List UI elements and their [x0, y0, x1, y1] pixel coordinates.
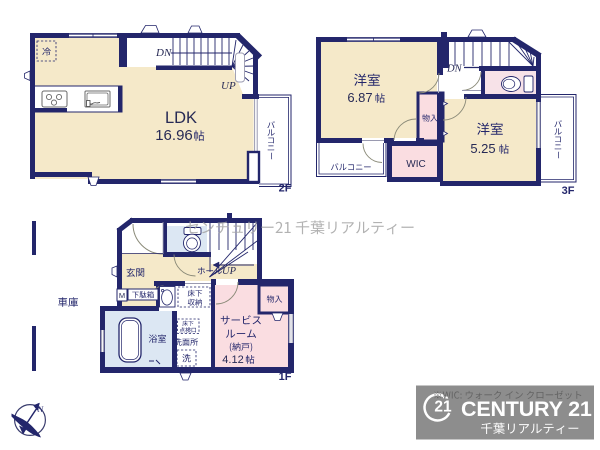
svg-text:16.96: 16.96	[155, 127, 193, 144]
svg-text:LDK: LDK	[165, 109, 197, 127]
svg-text:1F: 1F	[279, 371, 292, 383]
svg-text:WIC: WIC	[406, 159, 425, 170]
svg-text:3F: 3F	[562, 185, 575, 197]
svg-text:5.25: 5.25	[470, 141, 495, 156]
svg-text:CENTURY 21: CENTURY 21	[461, 397, 592, 421]
svg-text:M: M	[119, 291, 125, 300]
svg-text:UP: UP	[221, 80, 236, 92]
svg-text:6.87: 6.87	[347, 90, 372, 105]
svg-text:2F: 2F	[279, 183, 292, 195]
svg-text:DN: DN	[446, 64, 463, 75]
svg-text:4.12: 4.12	[222, 354, 243, 366]
svg-text:DN: DN	[155, 47, 172, 59]
svg-text:21: 21	[434, 399, 452, 416]
svg-text:UP: UP	[222, 266, 237, 277]
